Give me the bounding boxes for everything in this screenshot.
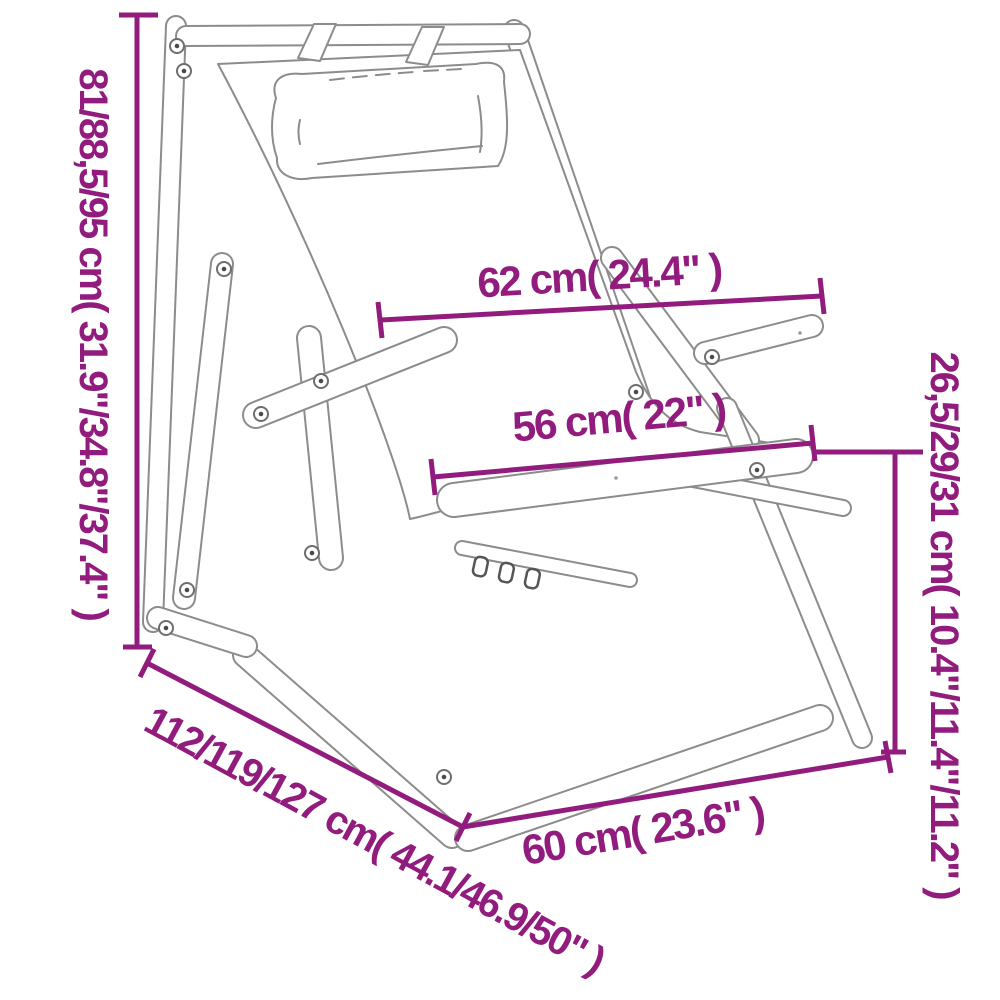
dimension-diagram-page: 81/88,5/95 cm( 31.9"/34.8"/37.4" ) 62 cm…: [0, 0, 1000, 1000]
dimension-height-label: 81/88,5/95 cm( 31.9"/34.8"/37.4" ): [71, 68, 115, 620]
chair-rear-leg-frame-left: [184, 264, 222, 598]
chair-right-armrest: [705, 326, 812, 353]
chair-top-bar: [186, 34, 520, 36]
deck-chair-dimension-diagram: 81/88,5/95 cm( 31.9"/34.8"/37.4" ) 62 cm…: [0, 0, 1000, 1000]
chair-pillow: [272, 63, 507, 179]
wood-speck: [798, 331, 802, 335]
chair-front-left-leg: [309, 338, 331, 558]
adjustment-rack-tooth: [524, 568, 541, 589]
chair-seat-rear-bar: [462, 548, 630, 589]
adjustment-rack-tooth: [498, 562, 515, 583]
chair-line-art: [153, 24, 862, 838]
chair-back-left-rail: [153, 26, 176, 622]
adjustment-rack-tooth: [472, 556, 489, 577]
dimension-armrest-height: 26,5/29/31 cm( 10.4"/11.4"/11.2" ): [881, 351, 966, 899]
dimension-armrest-height-label: 26,5/29/31 cm( 10.4"/11.4"/11.2" ): [922, 351, 966, 899]
wood-speck: [614, 476, 618, 480]
